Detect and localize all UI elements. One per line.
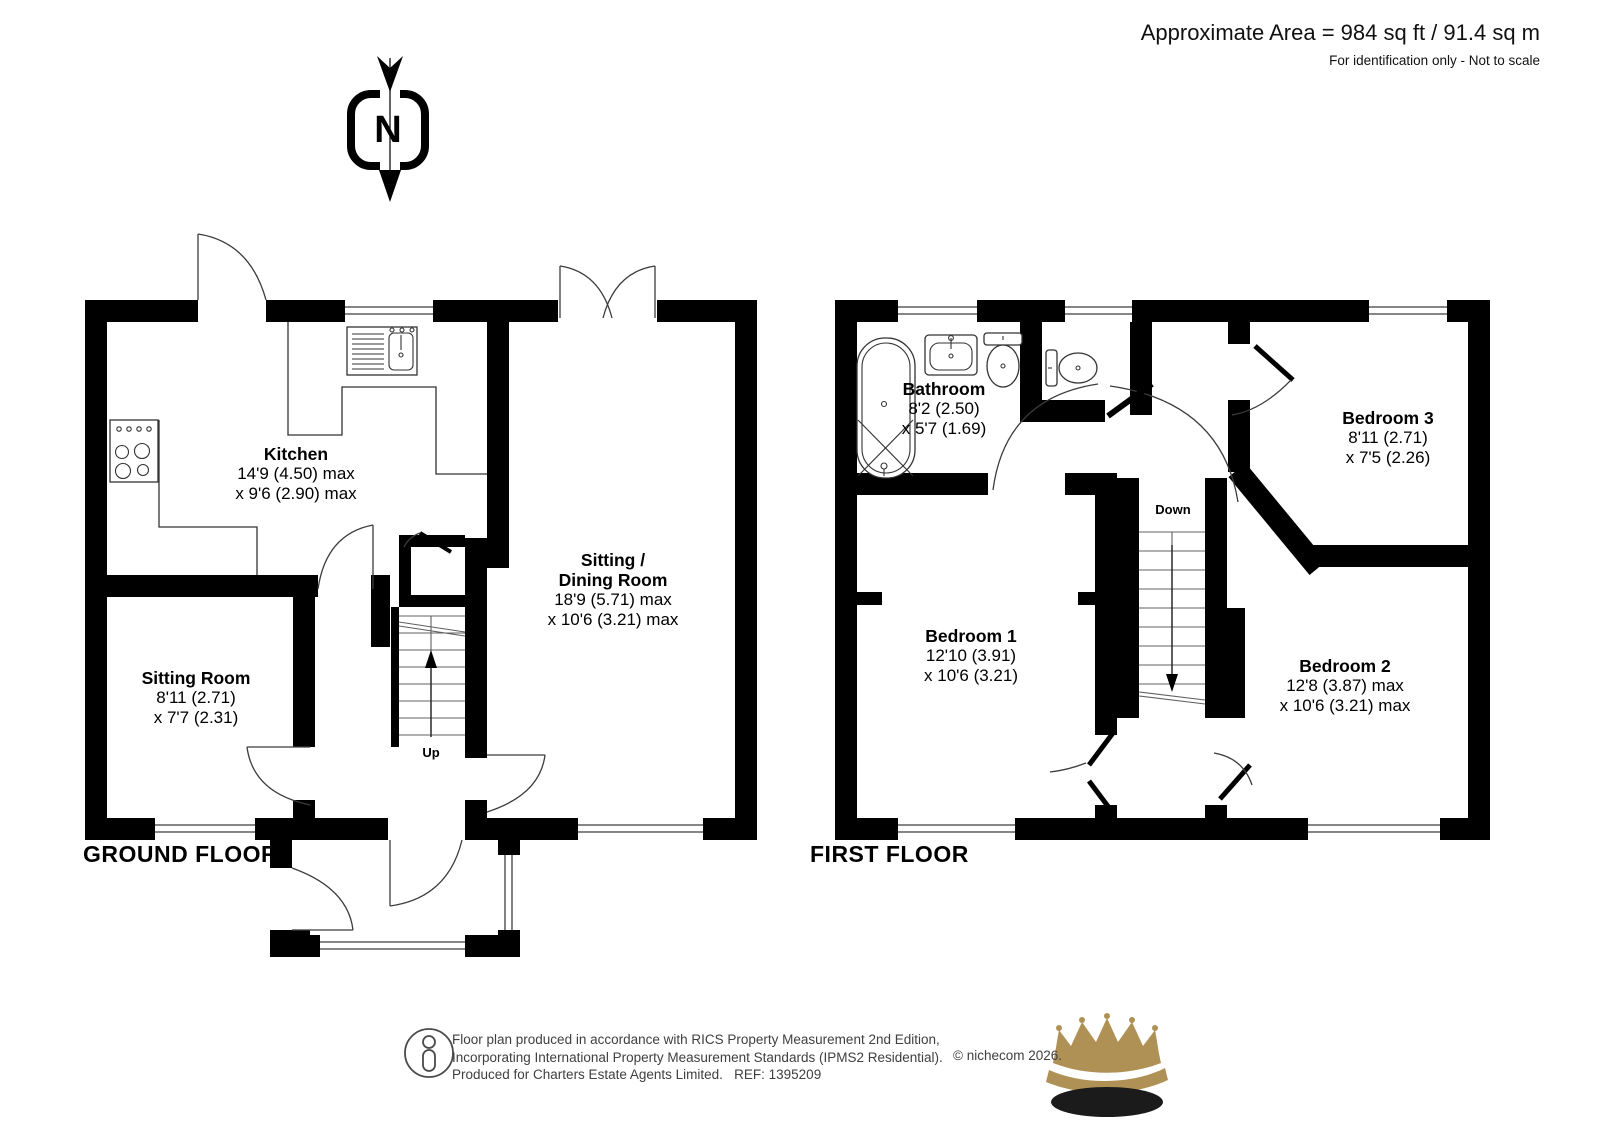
person-scale-icon (405, 1029, 453, 1077)
stairs-up (399, 616, 465, 737)
room-name: Bathroom (834, 379, 1054, 399)
compass-north-letter: N (351, 109, 425, 152)
footer-disclaimer: Floor plan produced in accordance with R… (452, 1031, 943, 1084)
room-dim: 12'8 (3.87) max (1235, 676, 1455, 696)
copyright-text: © nichecom 2026. (953, 1048, 1062, 1063)
room-dim: x 7'7 (2.31) (86, 708, 306, 728)
room-label-bedroom-1: Bedroom 1 12'10 (3.91) x 10'6 (3.21) (861, 626, 1081, 686)
stairs-up-label: Up (391, 745, 471, 760)
kitchen-sink-icon (347, 327, 417, 375)
room-label-sitting-room: Sitting Room 8'11 (2.71) x 7'7 (2.31) (86, 668, 306, 728)
ground-floor-title: GROUND FLOOR (83, 841, 278, 868)
room-name: Kitchen (186, 444, 406, 464)
footer-line-2: Incorporating International Property Mea… (452, 1049, 943, 1067)
disclaimer-text: For identification only - Not to scale (1141, 53, 1540, 68)
room-label-sitting-dining: Sitting / Dining Room 18'9 (5.71) max x … (503, 550, 723, 630)
floorplan-graphics (0, 0, 1600, 1131)
room-name: Sitting / (503, 550, 723, 570)
room-dim: x 5'7 (1.69) (834, 419, 1054, 439)
room-dim: x 10'6 (3.21) max (1235, 696, 1455, 716)
room-label-bedroom-2: Bedroom 2 12'8 (3.87) max x 10'6 (3.21) … (1235, 656, 1455, 716)
stairs-down (1139, 532, 1205, 704)
stove-icon (110, 420, 158, 482)
room-dim: 18'9 (5.71) max (503, 590, 723, 610)
room-dim: 12'10 (3.91) (861, 646, 1081, 666)
approximate-area-text: Approximate Area = 984 sq ft / 91.4 sq m (1141, 20, 1540, 46)
footer-line-3: Produced for Charters Estate Agents Limi… (452, 1066, 943, 1084)
header: Approximate Area = 984 sq ft / 91.4 sq m… (1141, 20, 1540, 68)
basin-icon (925, 335, 977, 375)
room-dim: x 10'6 (3.21) max (503, 610, 723, 630)
room-dim: x 9'6 (2.90) max (186, 484, 406, 504)
first-floor-title: FIRST FLOOR (810, 841, 969, 868)
room-dim: 8'11 (2.71) (86, 688, 306, 708)
floorplan-page: Approximate Area = 984 sq ft / 91.4 sq m… (0, 0, 1600, 1131)
room-label-bedroom-3: Bedroom 3 8'11 (2.71) x 7'5 (2.26) (1278, 408, 1498, 468)
stairs-down-label: Down (1133, 502, 1213, 517)
room-label-bathroom: Bathroom 8'2 (2.50) x 5'7 (1.69) (834, 379, 1054, 439)
room-name: Bedroom 2 (1235, 656, 1455, 676)
room-dim: 8'11 (2.71) (1278, 428, 1498, 448)
footer-line-1: Floor plan produced in accordance with R… (452, 1031, 943, 1049)
room-name: Bedroom 1 (861, 626, 1081, 646)
room-dim: x 7'5 (2.26) (1278, 448, 1498, 468)
room-name: Dining Room (503, 570, 723, 590)
room-label-kitchen: Kitchen 14'9 (4.50) max x 9'6 (2.90) max (186, 444, 406, 504)
room-dim: 8'2 (2.50) (834, 399, 1054, 419)
room-name: Sitting Room (86, 668, 306, 688)
room-dim: 14'9 (4.50) max (186, 464, 406, 484)
room-name: Bedroom 3 (1278, 408, 1498, 428)
charters-crown-logo (1046, 1013, 1168, 1117)
room-dim: x 10'6 (3.21) (861, 666, 1081, 686)
